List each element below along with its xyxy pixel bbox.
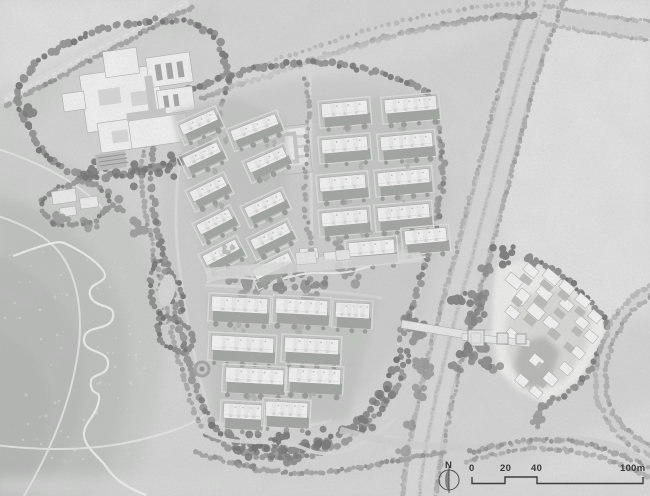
svg-text:40: 40 xyxy=(531,463,542,474)
svg-text:100m: 100m xyxy=(620,463,646,474)
svg-text:20: 20 xyxy=(500,463,511,474)
svg-text:0: 0 xyxy=(469,463,475,474)
